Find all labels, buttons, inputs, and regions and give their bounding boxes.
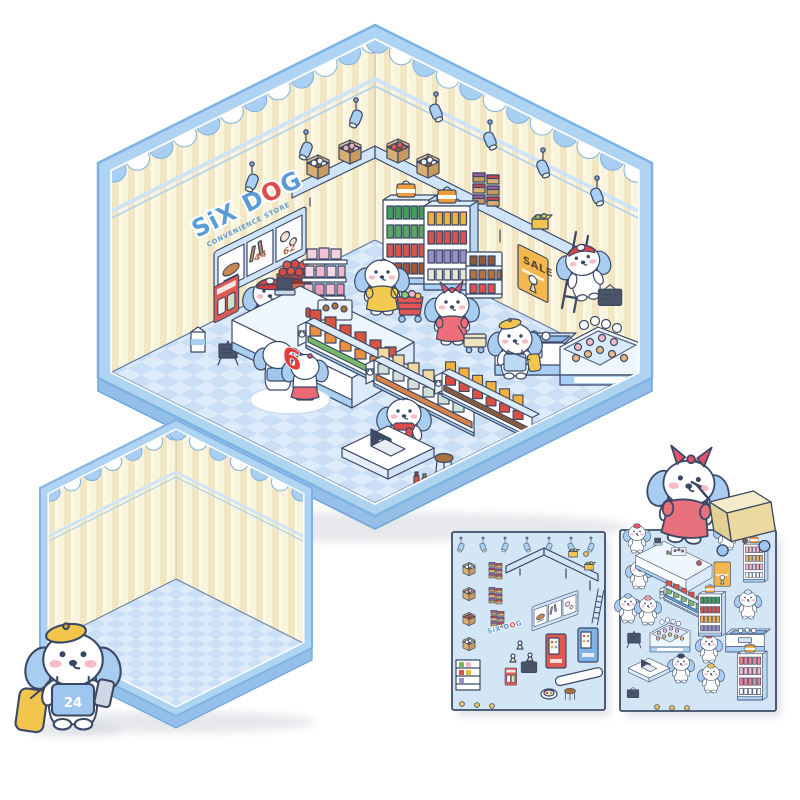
- shelf-box-pink: [339, 140, 361, 164]
- sticker-dot: [685, 706, 690, 711]
- milk-carton-standee: [191, 327, 205, 352]
- sticker-sushi: [541, 689, 557, 699]
- sticker-box-open: [463, 562, 475, 575]
- sticker-box-open: [463, 587, 475, 600]
- product-illustration: SiX DOG CONVENIENCE STORE 44 62 SALE 6: [0, 0, 800, 800]
- sticker-poster-sale: [714, 562, 731, 586]
- sticker-dot: [670, 706, 675, 711]
- sticker-box-open: [463, 637, 475, 650]
- sticker-dot: [743, 539, 748, 544]
- shelf-box-white: [417, 154, 439, 178]
- sticker-sheet-characters: [613, 521, 781, 717]
- sticker-box-open: [463, 612, 475, 625]
- sticker-dot: [490, 704, 495, 709]
- sticker-sheet-fixtures: SiX DOG: [452, 532, 610, 716]
- sticker-dot: [697, 561, 702, 566]
- sticker-vending: [578, 628, 598, 662]
- sticker-fridge: [737, 643, 767, 700]
- delivery-dog-badge: 24: [64, 696, 82, 711]
- sticker-dot: [460, 702, 465, 707]
- sticker-mini-shelf: [456, 660, 480, 690]
- shelf-box-red: [387, 139, 409, 163]
- sticker-poster-red: [505, 668, 517, 685]
- six-dog-sticker-set-photo: SiX DOG CONVENIENCE STORE 44 62 SALE 6: [0, 0, 800, 800]
- sticker-vending: [546, 634, 566, 668]
- sticker-dot: [655, 705, 660, 710]
- shelf-box-buns: [307, 155, 329, 179]
- sticker-dot: [584, 552, 589, 557]
- floor-mat: [250, 386, 330, 414]
- sticker-dot: [475, 703, 480, 708]
- sticker-fridge: [699, 585, 726, 637]
- chocolate-shelf: [466, 252, 502, 298]
